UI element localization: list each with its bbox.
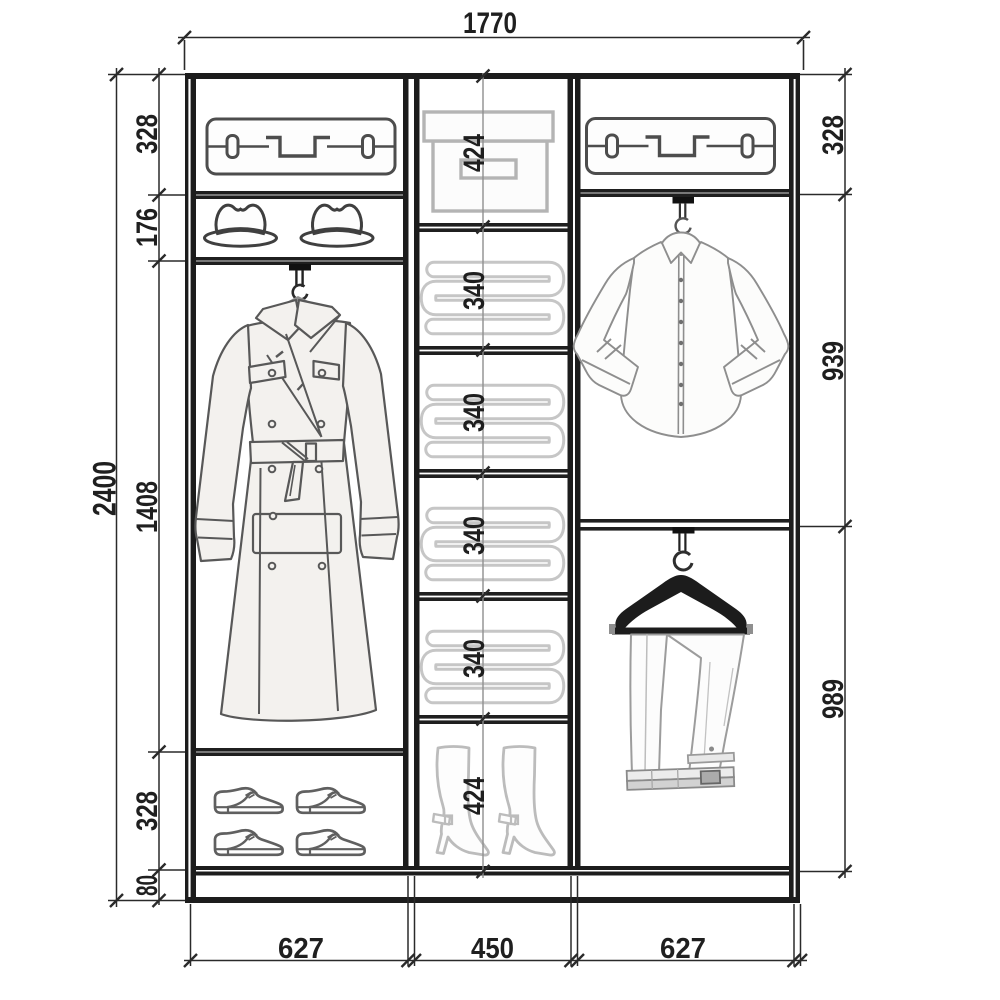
svg-text:328: 328 <box>131 791 164 831</box>
svg-text:450: 450 <box>471 933 514 965</box>
svg-text:939: 939 <box>817 341 850 381</box>
svg-text:627: 627 <box>660 933 706 965</box>
svg-text:176: 176 <box>131 208 164 247</box>
svg-text:328: 328 <box>817 115 850 155</box>
svg-text:627: 627 <box>278 933 324 965</box>
svg-text:989: 989 <box>817 679 850 719</box>
svg-text:340: 340 <box>458 516 491 555</box>
svg-text:328: 328 <box>131 114 164 154</box>
svg-text:340: 340 <box>458 639 491 678</box>
svg-text:424: 424 <box>458 134 491 172</box>
svg-text:2400: 2400 <box>87 461 123 516</box>
svg-text:424: 424 <box>458 777 491 815</box>
svg-text:340: 340 <box>458 271 491 310</box>
svg-text:340: 340 <box>458 393 491 432</box>
svg-text:1770: 1770 <box>463 7 517 40</box>
svg-text:1408: 1408 <box>131 481 164 533</box>
svg-text:80: 80 <box>131 875 164 896</box>
